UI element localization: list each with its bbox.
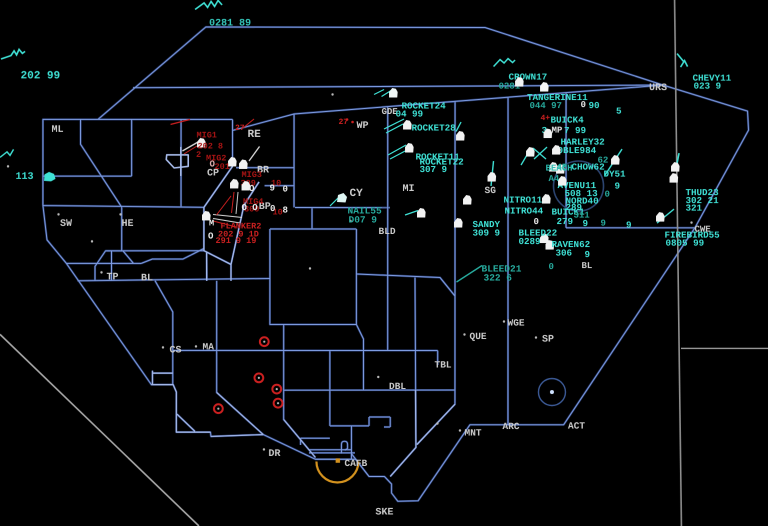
svg-text:0289: 0289 — [519, 236, 541, 247]
svg-text:0281 89: 0281 89 — [209, 18, 251, 29]
svg-text:309 9: 309 9 — [473, 228, 501, 239]
svg-text:023 9: 023 9 — [694, 81, 722, 92]
svg-text:321: 321 — [686, 203, 703, 214]
svg-text:D07 9: D07 9 — [349, 214, 378, 225]
svg-text:MI: MI — [403, 184, 415, 195]
svg-text:M: M — [209, 218, 214, 228]
svg-text:CS: CS — [169, 345, 181, 356]
svg-text:307 9: 307 9 — [420, 164, 448, 175]
svg-text:WGE: WGE — [507, 318, 524, 329]
svg-text:MP: MP — [552, 126, 563, 136]
svg-text:CY: CY — [350, 188, 364, 200]
svg-text:BLD: BLD — [379, 226, 396, 237]
svg-text:NITRO11: NITRO11 — [504, 195, 543, 206]
svg-text:RE: RE — [248, 129, 262, 141]
svg-text:291 9 19: 291 9 19 — [216, 236, 257, 246]
svg-text:9: 9 — [601, 219, 606, 229]
svg-text:62: 62 — [598, 156, 609, 166]
svg-text:HE: HE — [122, 219, 134, 230]
svg-text:044 97: 044 97 — [530, 101, 562, 111]
svg-text:9: 9 — [585, 249, 591, 260]
svg-text:ROCKET28: ROCKET28 — [412, 123, 457, 134]
svg-text:2: 2 — [196, 150, 201, 160]
svg-text:DBL: DBL — [389, 381, 406, 392]
svg-text:0805 99: 0805 99 — [666, 238, 705, 249]
svg-text:SG: SG — [485, 185, 497, 196]
svg-text:BL: BL — [141, 273, 153, 284]
svg-text:TBL: TBL — [434, 360, 451, 371]
svg-text:A4: A4 — [549, 174, 560, 184]
svg-text:322 6: 322 6 — [483, 273, 512, 284]
svg-text:113: 113 — [16, 172, 34, 183]
svg-text:0: 0 — [605, 190, 610, 200]
svg-text:0: 0 — [548, 262, 553, 272]
svg-text:O: O — [208, 231, 214, 241]
svg-text:BL: BL — [581, 261, 592, 271]
svg-text:ARC: ARC — [502, 421, 519, 432]
svg-text:9: 9 — [270, 183, 275, 193]
svg-text:0: 0 — [270, 204, 275, 214]
svg-text:QUE: QUE — [469, 331, 486, 342]
svg-text:ACT: ACT — [568, 420, 585, 431]
svg-text:ML: ML — [52, 125, 64, 136]
svg-text:04 99: 04 99 — [396, 109, 424, 120]
svg-text:5: 5 — [616, 106, 622, 117]
svg-text:MNT: MNT — [464, 428, 481, 439]
svg-text:CAFB: CAFB — [344, 458, 367, 469]
svg-text:NITRO44: NITRO44 — [505, 206, 544, 217]
svg-text:0: 0 — [283, 184, 288, 194]
svg-text:306: 306 — [556, 248, 573, 259]
svg-text:27: 27 — [235, 124, 245, 133]
svg-text:8: 8 — [283, 205, 288, 215]
svg-text:O: O — [249, 184, 255, 194]
svg-text:BUICK4: BUICK4 — [551, 115, 585, 126]
svg-text:URS: URS — [649, 83, 667, 94]
svg-text:O O: O O — [242, 203, 259, 213]
svg-text:SP: SP — [542, 335, 554, 346]
svg-text:201: 201 — [215, 162, 230, 172]
svg-text:0: 0 — [581, 100, 586, 110]
svg-text:TP: TP — [106, 272, 118, 283]
svg-text:9: 9 — [615, 181, 621, 192]
svg-text:0: 0 — [534, 217, 539, 227]
svg-text:279: 279 — [557, 216, 574, 227]
svg-text:MIG1: MIG1 — [197, 130, 217, 140]
svg-text:90: 90 — [589, 100, 600, 111]
svg-text:202 99: 202 99 — [21, 70, 61, 82]
svg-text:SKE: SKE — [375, 507, 393, 518]
svg-text:BEACH: BEACH — [546, 164, 573, 174]
svg-text:9: 9 — [626, 220, 632, 231]
svg-text:MA: MA — [202, 341, 214, 352]
svg-text:WP: WP — [357, 121, 369, 132]
svg-text:0BLE984: 0BLE984 — [558, 145, 597, 156]
svg-text:4+: 4+ — [541, 114, 551, 123]
svg-text:7 99: 7 99 — [564, 125, 586, 136]
svg-text:311: 311 — [574, 211, 591, 221]
svg-text:202 8: 202 8 — [198, 141, 224, 151]
svg-text:DY51: DY51 — [604, 169, 627, 180]
svg-text:DR: DR — [268, 449, 280, 460]
svg-text:SW: SW — [60, 219, 72, 230]
